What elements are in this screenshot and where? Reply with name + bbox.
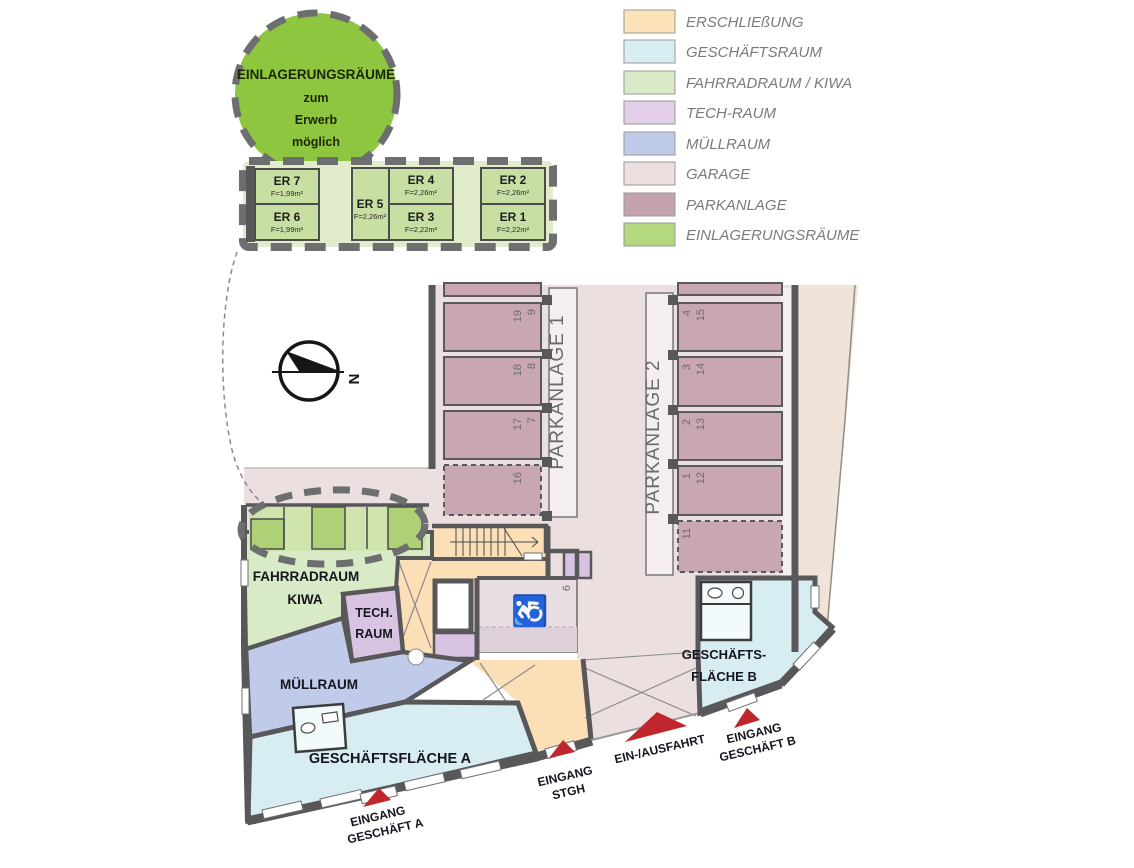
space-number: 17 bbox=[512, 418, 524, 430]
space-number: 11 bbox=[681, 528, 693, 539]
wc-sink bbox=[733, 588, 744, 599]
er-name: ER 2 bbox=[500, 173, 527, 187]
space-number: 3 bbox=[681, 364, 693, 370]
er-room: ER 4 F=2,26m² bbox=[389, 168, 453, 204]
space-number: 6 bbox=[561, 585, 573, 591]
legend-swatch bbox=[624, 10, 675, 33]
parking-space-optional bbox=[678, 521, 782, 572]
er-area: F=1,99m² bbox=[271, 225, 304, 234]
parkanlage1-spaces: 19 9 18 8 17 7 16 bbox=[444, 283, 552, 521]
er-area: F=2,26m² bbox=[405, 188, 438, 197]
legend: ERSCHLIEßUNG GESCHÄFTSRAUM FAHRRADRAUM /… bbox=[624, 10, 860, 246]
parking-space bbox=[678, 412, 782, 460]
er-name: ER 4 bbox=[408, 173, 435, 187]
wc-sink bbox=[322, 712, 338, 723]
legend-item: EINLAGERUNGSRÄUME bbox=[624, 223, 860, 246]
legend-item: MÜLLRAUM bbox=[624, 132, 771, 155]
legend-swatch bbox=[624, 71, 675, 94]
legend-label: PARKANLAGE bbox=[686, 197, 788, 214]
parking-space bbox=[678, 303, 782, 351]
space-number: 8 bbox=[526, 363, 538, 369]
storage-detail-strip: ER 7 F=1,99m² ER 6 F=1,99m² ER 5 F=2,26m… bbox=[243, 161, 553, 247]
wc-toilet bbox=[708, 588, 722, 598]
space-number: 18 bbox=[512, 364, 524, 376]
space-number: 19 bbox=[512, 310, 524, 322]
er-name: ER 1 bbox=[500, 210, 527, 224]
muellraum-label: MÜLLRAUM bbox=[280, 677, 358, 692]
space-number: 7 bbox=[526, 417, 538, 423]
legend-item: GESCHÄFTSRAUM bbox=[624, 40, 822, 63]
legend-item: GARAGE bbox=[624, 162, 751, 185]
legend-item: FAHRRADRAUM / KIWA bbox=[624, 71, 852, 94]
space-number: 15 bbox=[695, 309, 707, 321]
parkanlage2-label: PARKANLAGE 2 bbox=[643, 359, 664, 514]
legend-swatch bbox=[624, 223, 675, 246]
legend-swatch bbox=[624, 132, 675, 155]
er-area: F=2,22m² bbox=[405, 225, 438, 234]
space-number: 12 bbox=[695, 472, 707, 484]
space-number: 4 bbox=[681, 310, 693, 316]
compass-north-label: N bbox=[345, 374, 362, 385]
space-number: 2 bbox=[681, 419, 693, 425]
legend-label: GESCHÄFTSRAUM bbox=[686, 44, 822, 61]
legend-item: TECH-RAUM bbox=[624, 101, 776, 124]
er-name: ER 3 bbox=[408, 210, 435, 224]
er-area: F=2,26m² bbox=[354, 212, 387, 221]
er-room: ER 1 F=2,22m² bbox=[481, 204, 545, 240]
parking-space-optional bbox=[444, 465, 541, 515]
compass: N bbox=[270, 342, 362, 400]
legend-item: ERSCHLIEßUNG bbox=[624, 10, 804, 33]
space-number: 9 bbox=[526, 309, 538, 315]
er-area: F=1,99m² bbox=[271, 189, 304, 198]
tech-label2: RAUM bbox=[355, 627, 393, 641]
legend-label: GARAGE bbox=[686, 166, 751, 183]
floorplan-page: PARKANLAGE 1 PARKANLAGE 2 19 9 18 8 17 7… bbox=[0, 0, 1134, 868]
legend-swatch bbox=[624, 101, 675, 124]
fahrradraum-label1: FAHRRADRAUM bbox=[253, 569, 360, 584]
er-room: ER 5 F=2,26m² bbox=[352, 168, 389, 240]
er-room: ER 3 F=2,22m² bbox=[389, 204, 453, 240]
tech-label1: TECH. bbox=[355, 606, 393, 620]
detail-callout: EINLAGERUNGSRÄUME zum Erwerb möglich bbox=[235, 13, 397, 175]
er-name: ER 5 bbox=[357, 197, 384, 211]
callout-line4: möglich bbox=[292, 135, 340, 149]
legend-swatch bbox=[624, 162, 675, 185]
space-number: 14 bbox=[695, 363, 707, 375]
er-name: ER 6 bbox=[274, 210, 301, 224]
callout-title: EINLAGERUNGSRÄUME bbox=[237, 67, 395, 82]
muellraum-door-swing bbox=[408, 649, 424, 665]
elevator bbox=[435, 581, 471, 631]
er-room: ER 2 F=2,26m² bbox=[481, 168, 545, 204]
storage-cells bbox=[246, 505, 429, 551]
callout-line3: Erwerb bbox=[295, 113, 338, 127]
space-number: 13 bbox=[695, 418, 707, 430]
parking-space bbox=[678, 357, 782, 406]
parking-space-partial bbox=[678, 283, 782, 295]
legend-label: FAHRRADRAUM / KIWA bbox=[686, 75, 852, 92]
space-number: 16 bbox=[512, 472, 524, 484]
geschaeft-b-label2: FLÄCHE B bbox=[691, 669, 757, 684]
parking-space-partial bbox=[444, 283, 541, 296]
parkanlage1-label: PARKANLAGE 1 bbox=[547, 314, 568, 469]
er-room: ER 7 F=1,99m² bbox=[255, 169, 319, 204]
er-area: F=2,22m² bbox=[497, 225, 530, 234]
er-room: ER 6 F=1,99m² bbox=[255, 204, 319, 240]
fahrradraum-label2: KIWA bbox=[287, 592, 322, 607]
handicap-space: ♿ 6 bbox=[478, 578, 577, 652]
callout-line2: zum bbox=[304, 91, 329, 105]
legend-swatch bbox=[624, 193, 675, 216]
geschaeft-a-label: GESCHÄFTSFLÄCHE A bbox=[309, 750, 472, 767]
legend-label: TECH-RAUM bbox=[686, 105, 776, 122]
legend-label: ERSCHLIEßUNG bbox=[686, 14, 804, 31]
callout-leader-line bbox=[223, 252, 260, 501]
legend-label: MÜLLRAUM bbox=[686, 135, 771, 153]
parking-space bbox=[678, 466, 782, 515]
wheelchair-icon: ♿ bbox=[512, 592, 547, 629]
tech-shaft-small bbox=[434, 633, 476, 658]
legend-item: PARKANLAGE bbox=[624, 193, 788, 216]
space-number: 1 bbox=[681, 473, 693, 479]
floorplan-drawing: PARKANLAGE 1 PARKANLAGE 2 19 9 18 8 17 7… bbox=[0, 0, 1134, 868]
geschaeft-b-label1: GESCHÄFTS- bbox=[682, 647, 767, 662]
strip-left-wall bbox=[246, 166, 255, 242]
driveway-label: EIN-/AUSFAHRT bbox=[613, 732, 707, 767]
er-area: F=2,26m² bbox=[497, 188, 530, 197]
er-name: ER 7 bbox=[274, 174, 301, 188]
legend-label: EINLAGERUNGSRÄUME bbox=[686, 227, 860, 244]
legend-swatch bbox=[624, 40, 675, 63]
parkanlage2-spaces: 4 15 3 14 2 13 1 12 11 bbox=[668, 283, 782, 572]
